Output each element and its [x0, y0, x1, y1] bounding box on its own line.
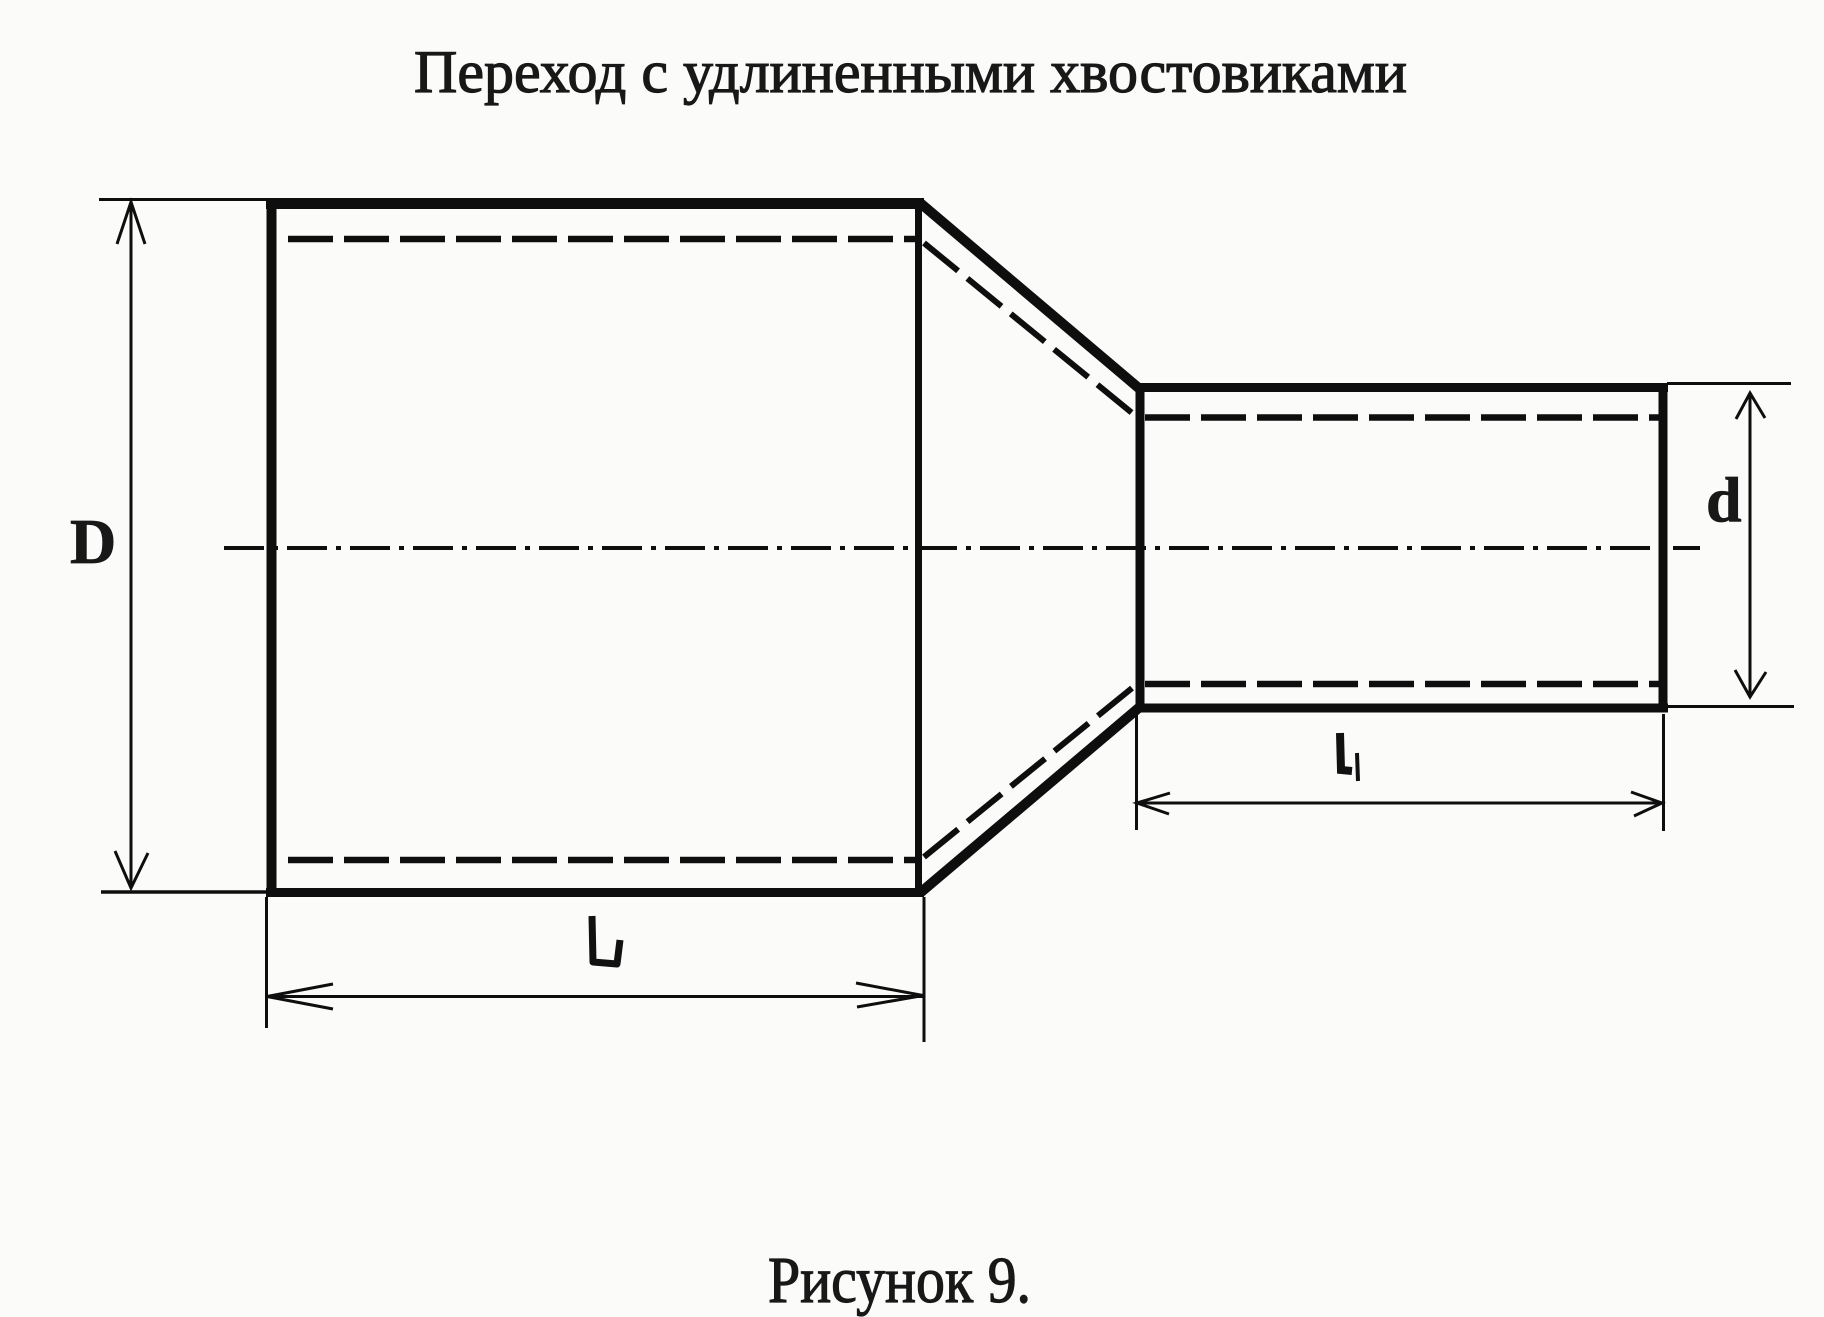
svg-text:Рисунок 9.: Рисунок 9.	[768, 1244, 1031, 1317]
svg-text:d: d	[1706, 464, 1742, 535]
svg-text:D: D	[70, 506, 116, 577]
svg-text:Переход с удлиненными хвостови: Переход с удлиненными хвостовиками	[414, 39, 1407, 105]
